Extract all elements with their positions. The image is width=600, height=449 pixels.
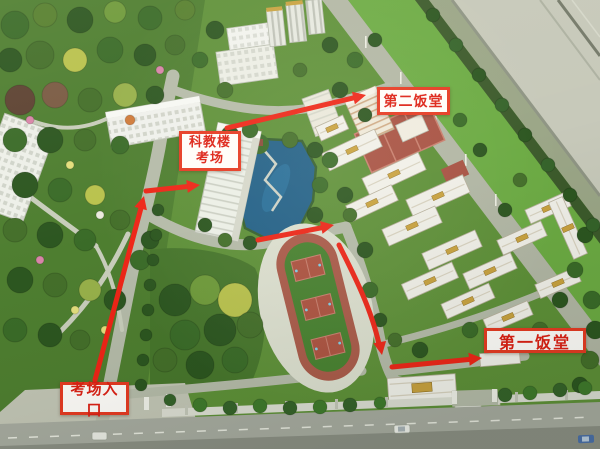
tree <box>1 11 29 39</box>
tree <box>175 0 195 20</box>
tree <box>347 52 363 68</box>
tree <box>74 229 96 251</box>
tree <box>137 354 149 366</box>
tree <box>204 314 236 346</box>
tree <box>48 178 72 202</box>
label-exam-building: 科教楼 考场 <box>179 131 241 171</box>
tree <box>147 254 159 266</box>
tree <box>586 218 600 232</box>
tree <box>343 398 357 412</box>
gate-opening <box>452 389 499 407</box>
tree <box>152 204 164 216</box>
label-first-canteen: 第一饭堂 <box>484 328 586 353</box>
gate-pillar <box>492 389 497 402</box>
tree <box>38 323 62 347</box>
tree <box>253 399 267 413</box>
tree <box>142 304 154 316</box>
tree <box>357 242 373 258</box>
label-exam-entrance-text: 考场入口 <box>63 378 126 420</box>
label-second-canteen-text: 第二饭堂 <box>384 91 444 111</box>
tree <box>33 3 57 27</box>
tree <box>581 351 599 369</box>
tree <box>5 85 35 115</box>
tree <box>223 401 237 415</box>
entrance-pillar <box>144 397 149 410</box>
tree <box>140 329 152 341</box>
tree <box>104 289 126 311</box>
tree <box>583 291 600 309</box>
tree <box>313 400 327 414</box>
tree <box>113 83 137 107</box>
tree <box>7 267 33 293</box>
tree <box>322 37 338 53</box>
tree <box>453 113 467 127</box>
flower-patch <box>101 326 109 334</box>
tree <box>337 187 353 203</box>
tree <box>146 86 164 104</box>
tree <box>472 68 486 82</box>
tree <box>150 229 162 241</box>
label-exam-entrance: 考场入口 <box>60 382 129 415</box>
tree <box>85 185 105 205</box>
flower-patch <box>26 116 34 124</box>
tree <box>498 203 512 217</box>
tree <box>322 152 338 168</box>
tree <box>78 88 102 112</box>
label-exam-building-line2: 考场 <box>196 151 224 167</box>
tree <box>198 218 212 232</box>
flower-patch <box>66 161 74 169</box>
label-second-canteen: 第二饭堂 <box>377 87 450 115</box>
car-white <box>394 425 410 434</box>
tree <box>134 44 156 66</box>
tree <box>70 330 90 350</box>
flower-patch <box>36 256 44 264</box>
tree <box>343 208 357 222</box>
tree <box>217 82 233 98</box>
tree <box>26 41 54 69</box>
tree <box>37 127 63 153</box>
tree <box>186 351 214 379</box>
tree <box>237 312 263 338</box>
tree <box>138 6 162 30</box>
tree <box>0 48 22 72</box>
tree <box>307 207 323 223</box>
tree <box>3 218 27 242</box>
tree <box>190 275 220 305</box>
car-blue <box>578 435 594 444</box>
tree <box>553 383 567 397</box>
tree <box>358 108 372 122</box>
tree <box>170 320 200 350</box>
tree <box>79 279 101 301</box>
tree <box>135 379 147 391</box>
tree <box>3 318 27 342</box>
tree <box>513 173 527 187</box>
tree <box>43 273 67 297</box>
car-white-2 <box>92 432 107 440</box>
tree <box>449 38 463 52</box>
tree <box>159 284 191 316</box>
tree <box>498 388 512 402</box>
flower-patch <box>156 66 164 74</box>
tree <box>164 394 176 406</box>
tree <box>42 82 68 108</box>
tree <box>307 142 323 158</box>
tree <box>206 21 224 39</box>
tree <box>282 132 298 148</box>
tree <box>312 177 328 193</box>
tree <box>373 313 387 327</box>
flower-patch <box>71 306 79 314</box>
label-first-canteen-text: 第一饭堂 <box>499 329 571 353</box>
tree <box>586 321 600 339</box>
tree <box>462 322 478 338</box>
tree <box>3 128 27 152</box>
tree <box>67 7 93 33</box>
tree <box>567 262 583 278</box>
tree <box>368 33 382 47</box>
tree <box>242 122 258 138</box>
flower-patch <box>96 211 104 219</box>
tree <box>473 143 487 157</box>
tree <box>37 222 63 248</box>
tree <box>153 348 177 372</box>
tree <box>374 397 386 409</box>
tree <box>362 282 378 298</box>
tree <box>283 401 297 415</box>
tree <box>165 35 185 55</box>
tree <box>243 236 257 250</box>
tree <box>332 82 348 98</box>
tree <box>495 98 509 112</box>
label-exam-building-line1: 科教楼 <box>189 135 231 151</box>
flower-patch <box>125 115 135 125</box>
tree <box>552 292 568 308</box>
tree <box>412 342 428 358</box>
tree <box>110 210 130 230</box>
tree <box>97 37 123 63</box>
tree <box>192 52 208 68</box>
tree <box>388 333 402 347</box>
tree <box>104 1 126 23</box>
tree <box>293 63 307 77</box>
tree <box>12 172 38 198</box>
tree <box>523 386 537 400</box>
tree <box>111 136 129 154</box>
tree <box>144 279 156 291</box>
tree <box>74 129 96 151</box>
tree <box>63 48 87 72</box>
tree <box>222 347 248 373</box>
tree <box>193 398 207 412</box>
tree <box>426 8 440 22</box>
tree <box>578 381 592 395</box>
tree <box>218 233 232 247</box>
tree <box>541 158 555 172</box>
gate-pillar <box>452 391 457 404</box>
tree <box>518 128 532 142</box>
campus-model-photo: 第二饭堂 科教楼 考场 第一饭堂 考场入口 <box>0 0 600 449</box>
tree <box>563 188 577 202</box>
